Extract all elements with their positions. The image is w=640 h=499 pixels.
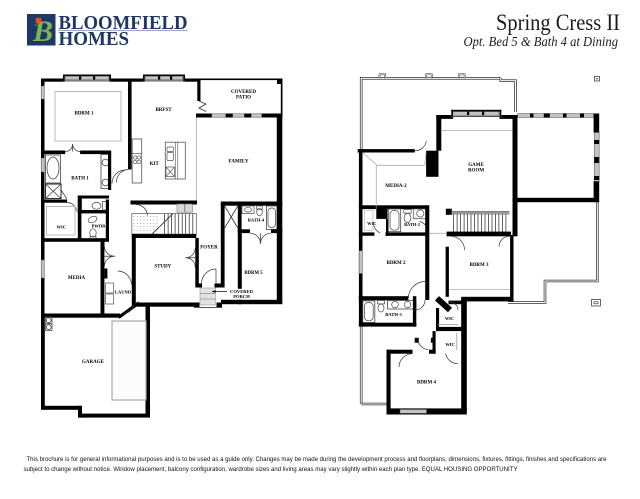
svg-text:BDRM 4: BDRM 4 — [417, 381, 437, 386]
svg-text:GARAGE: GARAGE — [82, 360, 105, 365]
svg-text:BDRM 3: BDRM 3 — [469, 263, 489, 268]
svg-text:Spring Cress II: Spring Cress II — [496, 10, 620, 35]
svg-text:LAUND: LAUND — [115, 289, 132, 294]
svg-text:FAMILY: FAMILY — [228, 159, 248, 165]
svg-text:MEDIA: MEDIA — [68, 276, 86, 281]
svg-text:B: B — [32, 15, 53, 48]
svg-text:MEDIA-2: MEDIA-2 — [385, 184, 407, 189]
svg-text:BDRM 2: BDRM 2 — [386, 261, 406, 266]
svg-text:PWDR: PWDR — [91, 224, 106, 229]
svg-text:Opt. Bed 5 & Bath 4 at Dining: Opt. Bed 5 & Bath 4 at Dining — [464, 34, 619, 49]
svg-text:KIT: KIT — [150, 162, 160, 167]
svg-text:ROOM: ROOM — [468, 168, 484, 173]
svg-text:BDRM 1: BDRM 1 — [74, 112, 94, 117]
svg-text:WIC: WIC — [367, 221, 376, 226]
svg-text:This brochure is for general i: This brochure is for general information… — [27, 456, 608, 463]
svg-text:subject to change without noti: subject to change without notice. Window… — [24, 466, 518, 473]
svg-text:HOMES: HOMES — [59, 28, 130, 50]
svg-text:STUDY: STUDY — [154, 265, 171, 270]
svg-text:BATH-2: BATH-2 — [404, 222, 420, 227]
svg-text:BATH-4: BATH-4 — [248, 218, 265, 223]
svg-text:WIC: WIC — [56, 225, 66, 230]
svg-text:PORCH: PORCH — [233, 294, 250, 299]
svg-text:BDRM 5: BDRM 5 — [244, 271, 263, 276]
svg-text:PATIO: PATIO — [236, 96, 251, 101]
svg-text:WIC: WIC — [445, 342, 454, 347]
svg-text:GAME: GAME — [468, 163, 484, 168]
svg-text:BATH 1: BATH 1 — [71, 177, 89, 182]
svg-text:WIC: WIC — [445, 316, 454, 321]
svg-text:BRFST: BRFST — [155, 108, 172, 113]
svg-text:FOYER: FOYER — [200, 246, 218, 251]
svg-text:COVERED: COVERED — [231, 90, 256, 95]
svg-text:BATH-3: BATH-3 — [385, 312, 402, 317]
